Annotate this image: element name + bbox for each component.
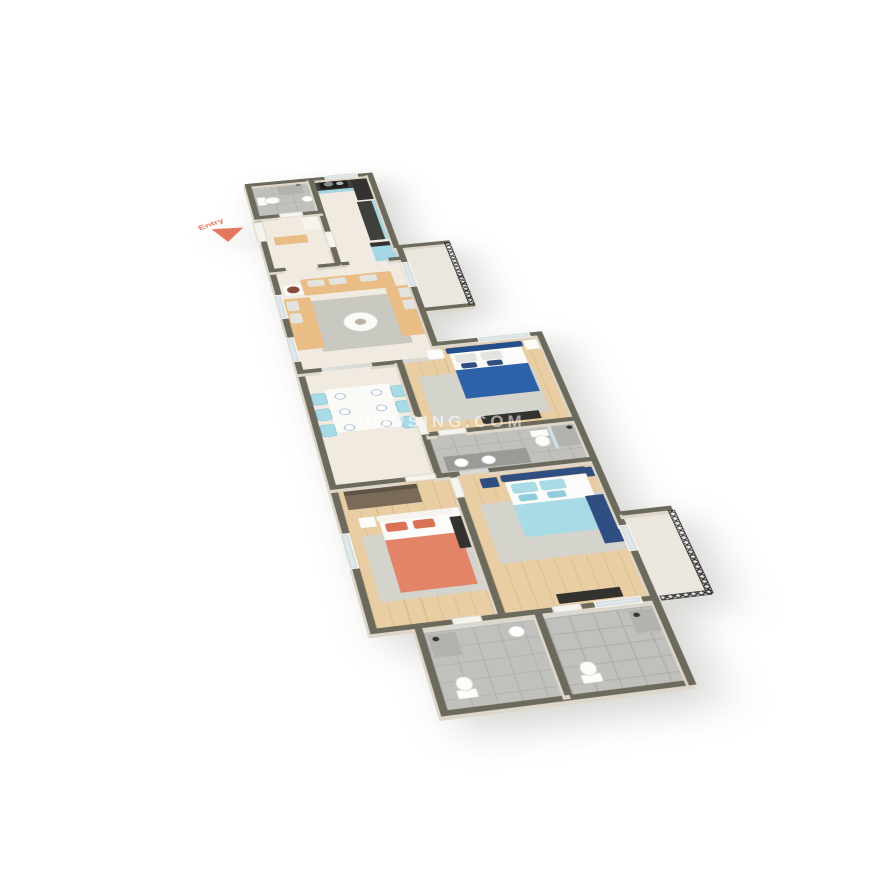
bath1-toilet: [256, 195, 281, 207]
master-nightstand: [479, 477, 500, 488]
watermark: HOUSING.COM: [358, 412, 526, 432]
sofa-pillow: [286, 301, 301, 312]
entry-arrow-icon: [210, 227, 243, 241]
sofa-pillow: [289, 313, 304, 324]
nightstand: [358, 516, 377, 528]
floorplan-stage: Entry HOUSING.COM: [0, 0, 870, 870]
floorplan: Entry: [238, 161, 701, 734]
nightstand: [426, 349, 445, 360]
